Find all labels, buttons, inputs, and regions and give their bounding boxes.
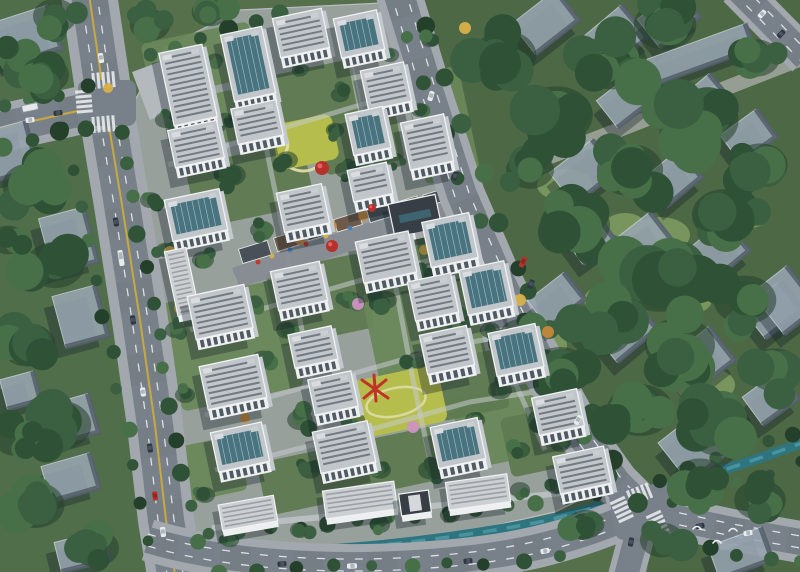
tree bbox=[337, 83, 350, 96]
vehicle-roof bbox=[141, 390, 145, 394]
street-tree bbox=[26, 133, 40, 147]
tree bbox=[729, 156, 754, 181]
vehicle-roof bbox=[543, 549, 547, 554]
street-tree bbox=[435, 68, 453, 86]
street-tree bbox=[110, 383, 122, 395]
street-umbrella bbox=[270, 254, 275, 259]
street-tree bbox=[516, 553, 532, 569]
street-tree bbox=[115, 125, 130, 140]
street-tree bbox=[127, 459, 138, 470]
street-tree bbox=[451, 114, 471, 134]
tree bbox=[764, 378, 795, 409]
vehicle-roof bbox=[56, 111, 60, 115]
street-tree bbox=[762, 435, 774, 447]
street-tree bbox=[785, 427, 800, 443]
vehicle-roof bbox=[629, 540, 633, 544]
vehicle-roof bbox=[280, 562, 284, 566]
tree bbox=[147, 193, 161, 207]
street-tree bbox=[147, 297, 161, 311]
tree bbox=[582, 311, 619, 348]
street-tree bbox=[134, 497, 147, 510]
street-tree bbox=[168, 432, 184, 448]
tree bbox=[511, 447, 523, 459]
street-tree bbox=[128, 225, 145, 242]
red-park-sculpture bbox=[374, 375, 376, 401]
street-tree bbox=[628, 493, 648, 513]
red-sphere-sculpture bbox=[315, 161, 329, 175]
tree bbox=[399, 355, 414, 370]
vehicle bbox=[25, 117, 35, 123]
street-tree bbox=[76, 200, 88, 212]
tree bbox=[652, 530, 671, 549]
aerial-site-plan-render bbox=[0, 0, 800, 572]
tree bbox=[611, 147, 652, 188]
tree bbox=[714, 416, 757, 459]
street-tree bbox=[401, 31, 413, 43]
tree bbox=[15, 438, 36, 459]
vehicle-roof bbox=[746, 531, 750, 535]
street-tree bbox=[194, 32, 207, 45]
tree bbox=[517, 157, 542, 182]
street-umbrella bbox=[348, 226, 353, 231]
sphere-highlight bbox=[369, 205, 372, 208]
tree bbox=[199, 6, 216, 23]
street-tree bbox=[554, 550, 566, 562]
vehicle-roof bbox=[114, 220, 118, 224]
tree bbox=[602, 404, 630, 432]
vehicle-roof bbox=[153, 494, 157, 498]
street-tree bbox=[477, 558, 489, 570]
tree bbox=[5, 252, 43, 290]
street-tree bbox=[160, 397, 177, 414]
blossom-tree bbox=[407, 421, 419, 433]
red-sphere-sculpture bbox=[368, 204, 376, 212]
sphere-highlight bbox=[328, 242, 332, 246]
tree bbox=[479, 42, 521, 84]
street-tree bbox=[140, 260, 154, 274]
vehicle-roof bbox=[148, 446, 152, 450]
vehicle-roof bbox=[131, 318, 135, 322]
gate-canopy bbox=[408, 494, 422, 512]
street-tree bbox=[730, 549, 743, 562]
autumn-tree bbox=[542, 326, 554, 338]
tree bbox=[196, 487, 210, 501]
tree bbox=[66, 2, 88, 24]
tree bbox=[554, 93, 591, 130]
street-tree bbox=[143, 536, 154, 547]
tree bbox=[650, 8, 684, 42]
street-tree bbox=[203, 528, 215, 540]
vehicle bbox=[347, 563, 357, 569]
tree bbox=[643, 396, 676, 429]
render-canvas bbox=[0, 0, 800, 572]
street-tree bbox=[144, 48, 158, 62]
vehicle-roof bbox=[466, 559, 470, 563]
vehicle-roof bbox=[99, 55, 103, 60]
street-tree bbox=[50, 122, 69, 141]
vehicle bbox=[463, 558, 472, 564]
vehicle-roof bbox=[350, 564, 354, 568]
tree bbox=[343, 291, 354, 302]
tree bbox=[45, 240, 82, 277]
tree bbox=[538, 211, 581, 254]
tree bbox=[595, 16, 636, 57]
street-tree bbox=[475, 164, 494, 183]
tree bbox=[666, 296, 704, 334]
tree bbox=[37, 15, 62, 40]
street-tree bbox=[81, 78, 96, 93]
street-tree bbox=[107, 345, 121, 359]
tree bbox=[677, 398, 709, 430]
street-tree bbox=[172, 464, 190, 482]
tree bbox=[253, 217, 264, 228]
street-tree bbox=[185, 500, 197, 512]
street-tree bbox=[366, 560, 377, 571]
tree bbox=[151, 247, 162, 258]
tree bbox=[698, 193, 737, 232]
street-tree bbox=[327, 558, 340, 571]
vehicle bbox=[53, 110, 63, 116]
tree bbox=[253, 231, 265, 243]
street-umbrella bbox=[256, 260, 261, 265]
street-tree bbox=[78, 120, 95, 137]
street-tree bbox=[416, 75, 431, 90]
vehicle bbox=[277, 561, 286, 567]
tree bbox=[373, 525, 383, 535]
tree bbox=[654, 79, 704, 129]
tree bbox=[685, 473, 712, 500]
tree bbox=[737, 349, 774, 386]
tree bbox=[87, 549, 109, 571]
tree bbox=[520, 488, 530, 498]
tree bbox=[26, 338, 58, 370]
street-tree bbox=[126, 190, 139, 203]
tree bbox=[417, 104, 428, 115]
tree bbox=[419, 30, 432, 43]
tree bbox=[154, 10, 174, 30]
street-tree bbox=[489, 213, 508, 232]
street-tree bbox=[91, 275, 103, 287]
tree bbox=[277, 154, 292, 169]
street-tree bbox=[156, 361, 168, 373]
tree bbox=[178, 383, 189, 394]
tree bbox=[510, 85, 560, 135]
sphere-highlight bbox=[317, 163, 322, 168]
tree bbox=[658, 248, 697, 287]
street-tree bbox=[527, 495, 543, 511]
street-tree bbox=[653, 474, 667, 488]
street-tree bbox=[703, 540, 719, 556]
tree bbox=[744, 478, 771, 505]
tree bbox=[737, 284, 769, 316]
street-tree bbox=[68, 165, 79, 176]
vehicle-roof bbox=[28, 118, 32, 122]
tree bbox=[298, 462, 311, 475]
street-tree bbox=[154, 328, 166, 340]
street-tree bbox=[94, 309, 109, 324]
tree bbox=[734, 37, 760, 63]
tree bbox=[10, 164, 47, 201]
tree bbox=[292, 524, 306, 538]
tree bbox=[23, 64, 53, 94]
street-tree bbox=[732, 477, 742, 487]
tree bbox=[500, 172, 520, 192]
autumn-tree bbox=[459, 22, 471, 34]
tree bbox=[18, 490, 47, 519]
vehicle-roof bbox=[161, 529, 165, 534]
red-sphere-sculpture bbox=[326, 240, 338, 252]
tree bbox=[373, 298, 390, 315]
street-tree bbox=[122, 422, 138, 438]
tower-roof bbox=[400, 114, 453, 170]
tree bbox=[196, 254, 211, 269]
tree bbox=[575, 54, 613, 92]
autumn-tree bbox=[103, 83, 113, 93]
tree bbox=[657, 338, 695, 376]
street-tree bbox=[441, 557, 452, 568]
street-tree bbox=[120, 156, 134, 170]
tree bbox=[576, 516, 596, 536]
street-tree bbox=[764, 552, 779, 567]
